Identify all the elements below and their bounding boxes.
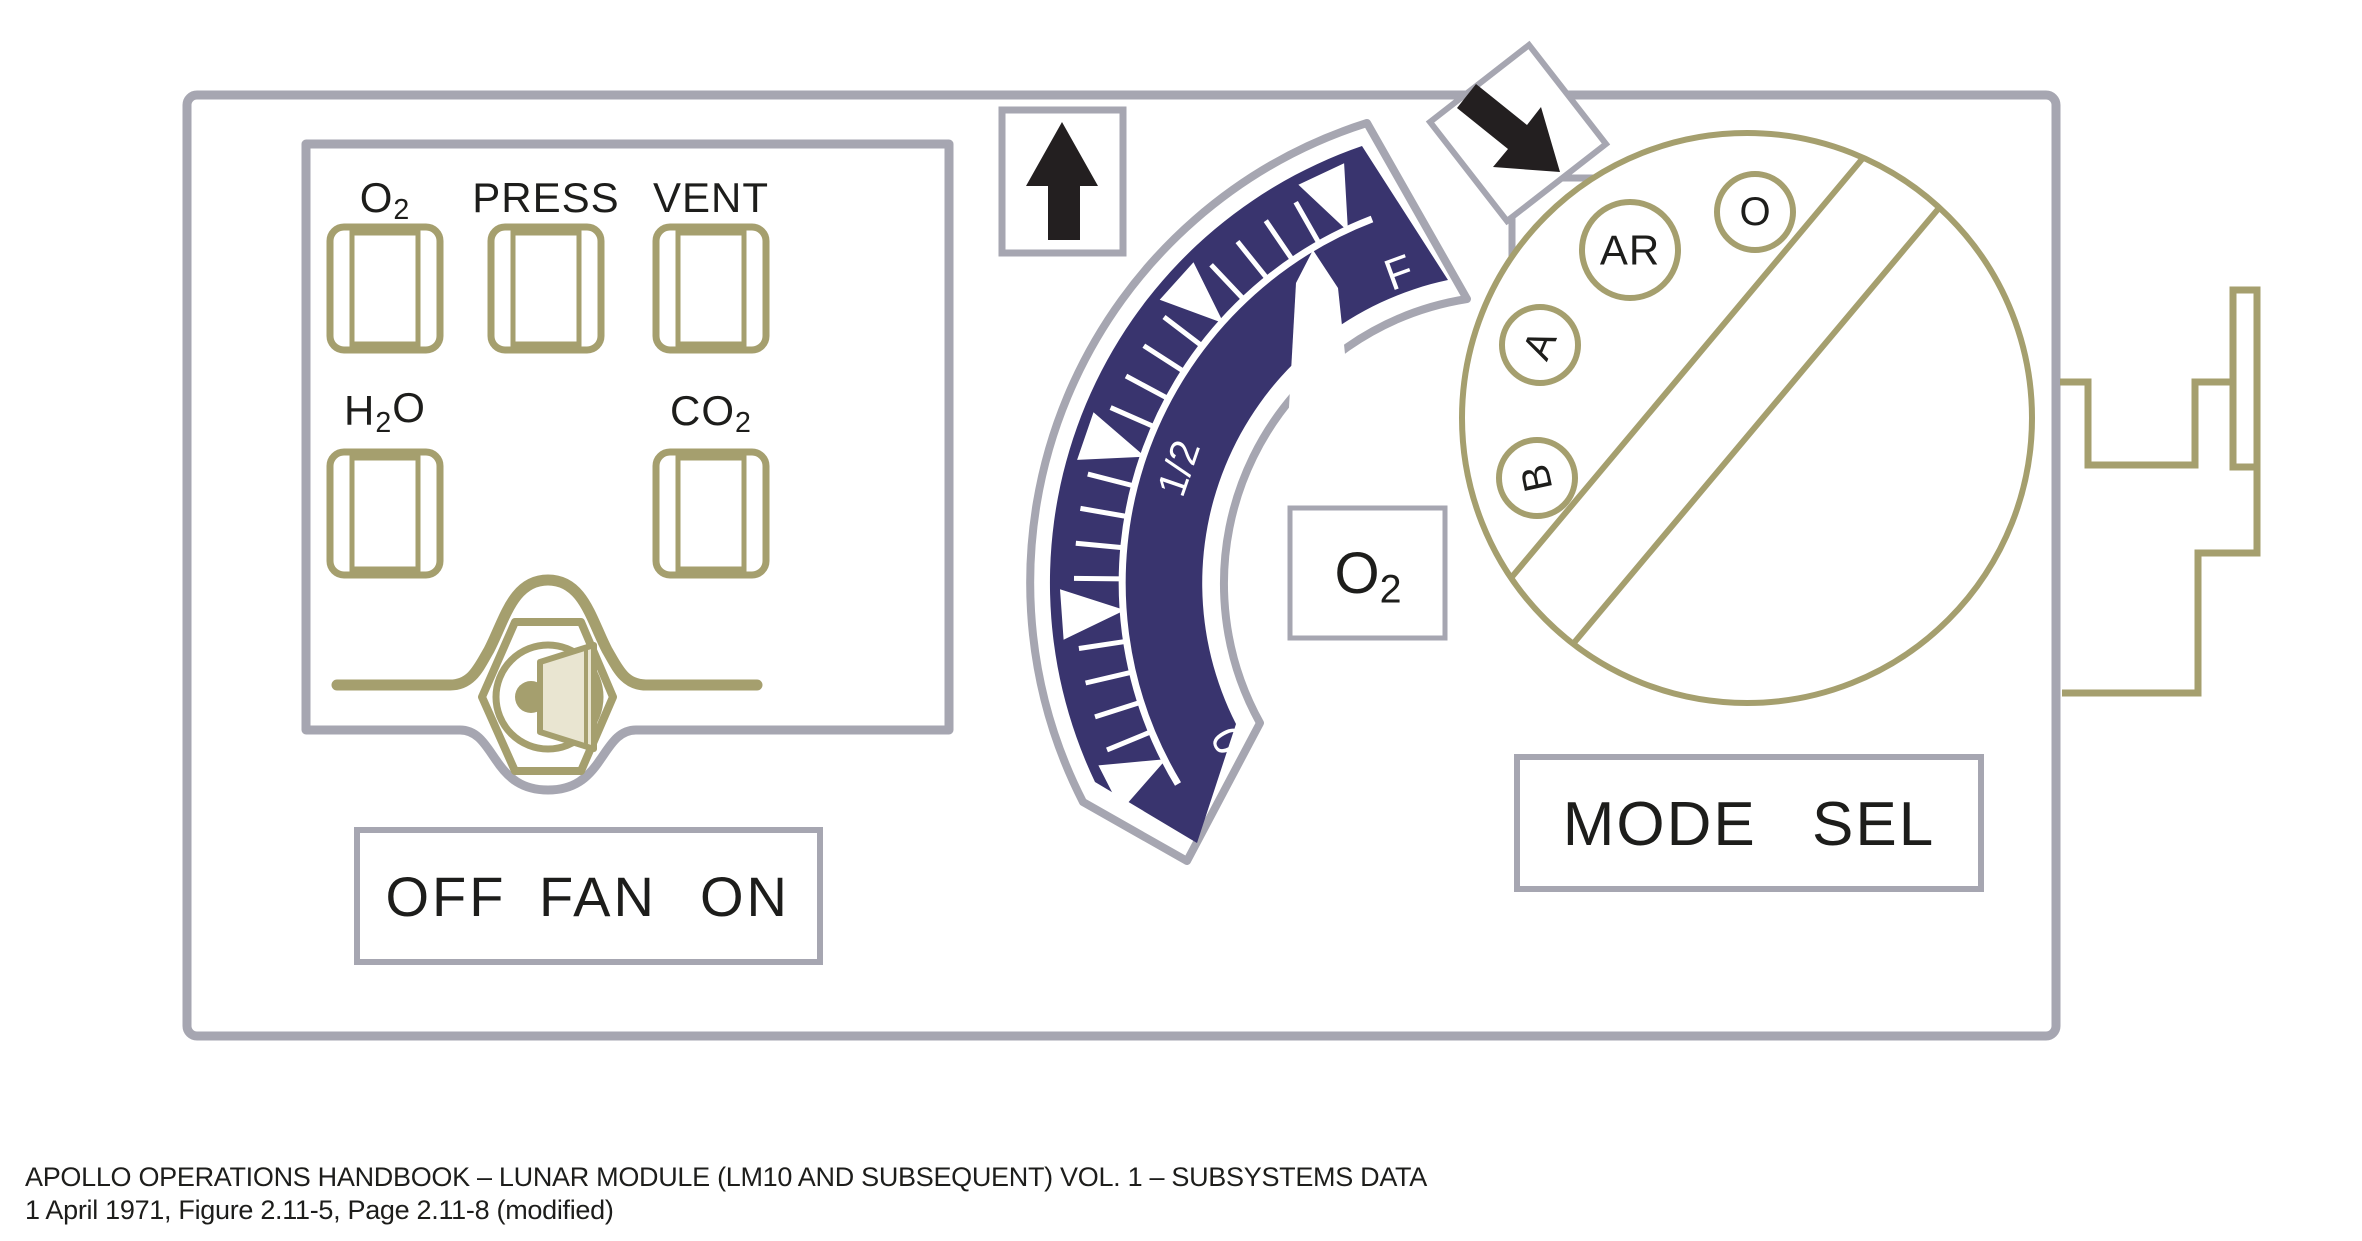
window-label-press: PRESS xyxy=(472,174,619,221)
mode-sel-label: MODE SEL xyxy=(1563,790,1935,859)
connector-upper-path xyxy=(2060,382,2233,465)
fan-label: FAN xyxy=(539,865,657,928)
fan-switch-placard: OFF FAN ON xyxy=(357,830,820,962)
indicator-panel-outline xyxy=(306,144,949,790)
indicator-panel: O2 PRESS VENT H2O CO2 xyxy=(306,144,949,790)
up-arrow-indicator xyxy=(1002,110,1123,253)
position-label-o: O xyxy=(1739,190,1770,234)
caption: APOLLO OPERATIONS HANDBOOK – LUNAR MODUL… xyxy=(25,1162,1427,1225)
position-label-ar: AR xyxy=(1600,227,1660,274)
fan-switch xyxy=(482,622,613,771)
caption-line-2: 1 April 1971, Figure 2.11-5, Page 2.11-8… xyxy=(25,1195,614,1225)
caption-line-1: APOLLO OPERATIONS HANDBOOK – LUNAR MODUL… xyxy=(25,1162,1427,1192)
connector-lower-path xyxy=(2062,467,2257,693)
gauge-placard: O2 xyxy=(1290,508,1445,638)
connector-outline xyxy=(2060,290,2257,693)
fan-on-label: ON xyxy=(700,865,790,928)
window-label-vent: VENT xyxy=(653,174,769,221)
control-panel-diagram: O2 PRESS VENT H2O CO2 xyxy=(0,0,2362,1241)
figure-page: O2 PRESS VENT H2O CO2 xyxy=(0,0,2362,1241)
connector-tab xyxy=(2233,290,2257,467)
fan-off-label: OFF xyxy=(386,865,507,928)
